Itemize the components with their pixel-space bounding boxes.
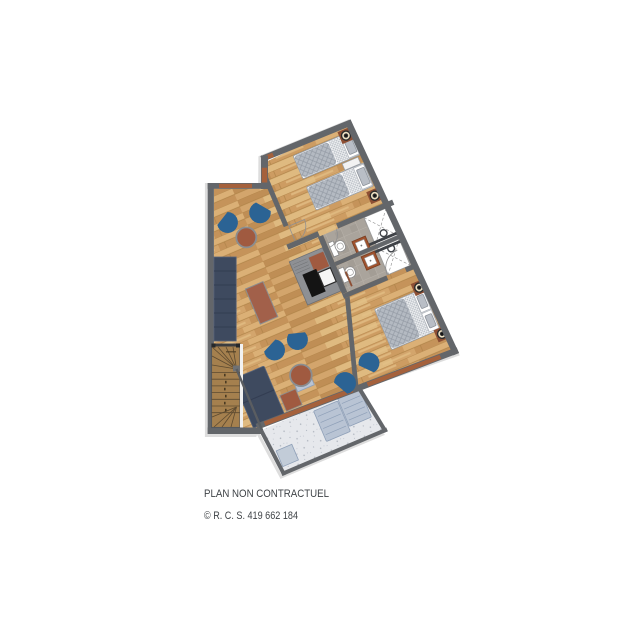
svg-text:PLAN NON CONTRACTUEL: PLAN NON CONTRACTUEL [204, 488, 329, 500]
svg-text:© R. C. S. 419 662 184: © R. C. S. 419 662 184 [204, 510, 298, 522]
